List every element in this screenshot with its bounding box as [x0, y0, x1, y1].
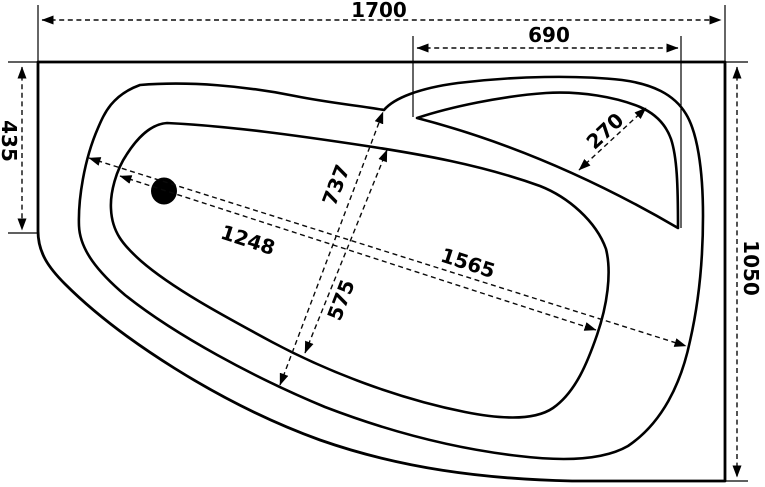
technical-drawing-canvas: 1700 690 435 1050 270 737 575 1248 1565	[0, 0, 765, 487]
bathtub-dimension-drawing: 1700 690 435 1050 270 737 575 1248 1565	[0, 0, 765, 487]
dimension-label-1700: 1700	[351, 0, 407, 22]
corner-seat-edge	[417, 93, 678, 228]
dimension-label-1050: 1050	[739, 240, 763, 296]
dimension-line-1248	[120, 176, 596, 330]
dimension-label-435: 435	[0, 120, 21, 162]
dimension-line-1565	[89, 158, 686, 346]
dimension-label-1248: 1248	[218, 220, 278, 260]
basin-edge	[111, 123, 609, 418]
dimension-label-690: 690	[528, 23, 570, 47]
dimension-label-575: 575	[322, 276, 359, 324]
dimension-label-737: 737	[317, 161, 354, 209]
dimension-line-737	[280, 112, 383, 385]
dimension-label-270: 270	[582, 108, 629, 154]
